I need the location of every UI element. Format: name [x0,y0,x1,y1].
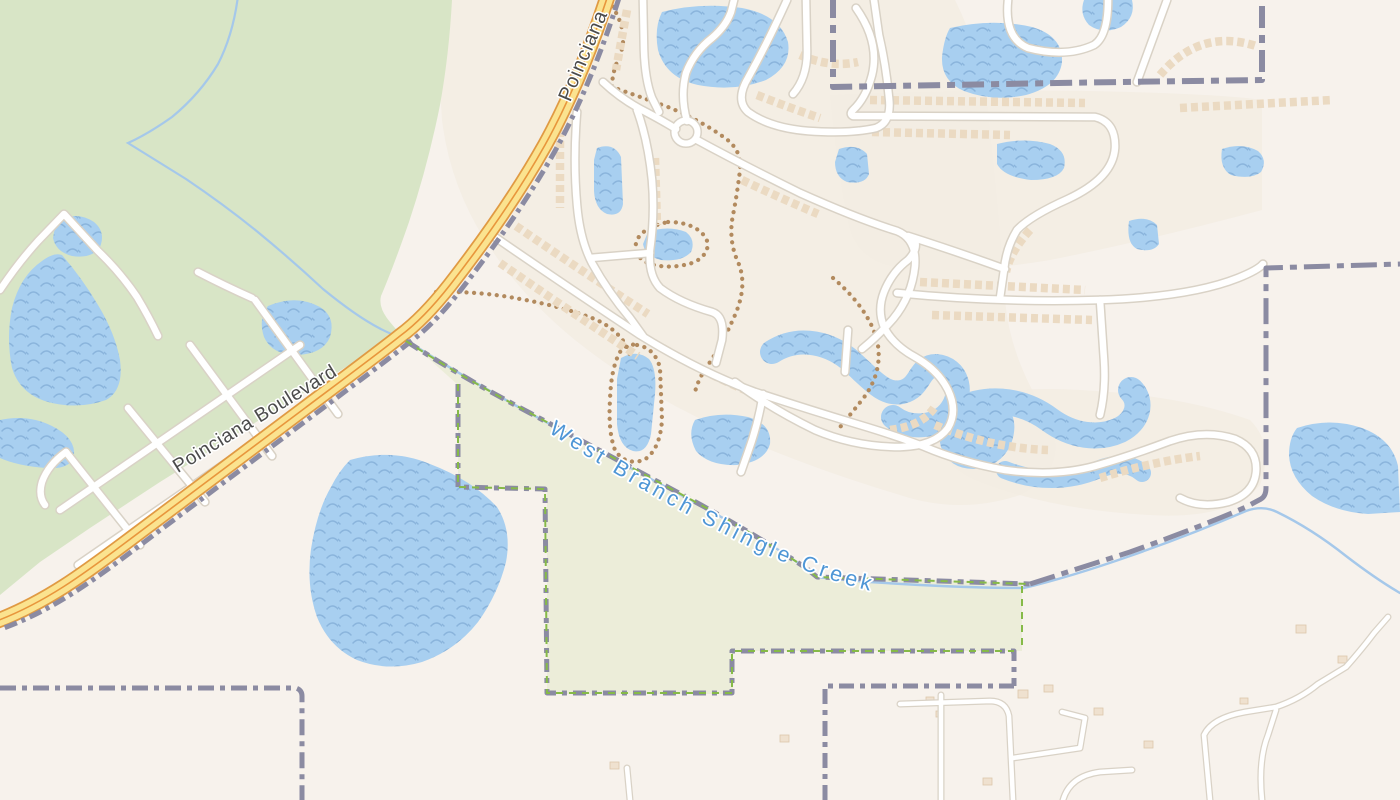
map-svg: PoincianaPoinciana BoulevardWest Branch … [0,0,1400,800]
map-canvas[interactable]: PoincianaPoinciana BoulevardWest Branch … [0,0,1400,800]
